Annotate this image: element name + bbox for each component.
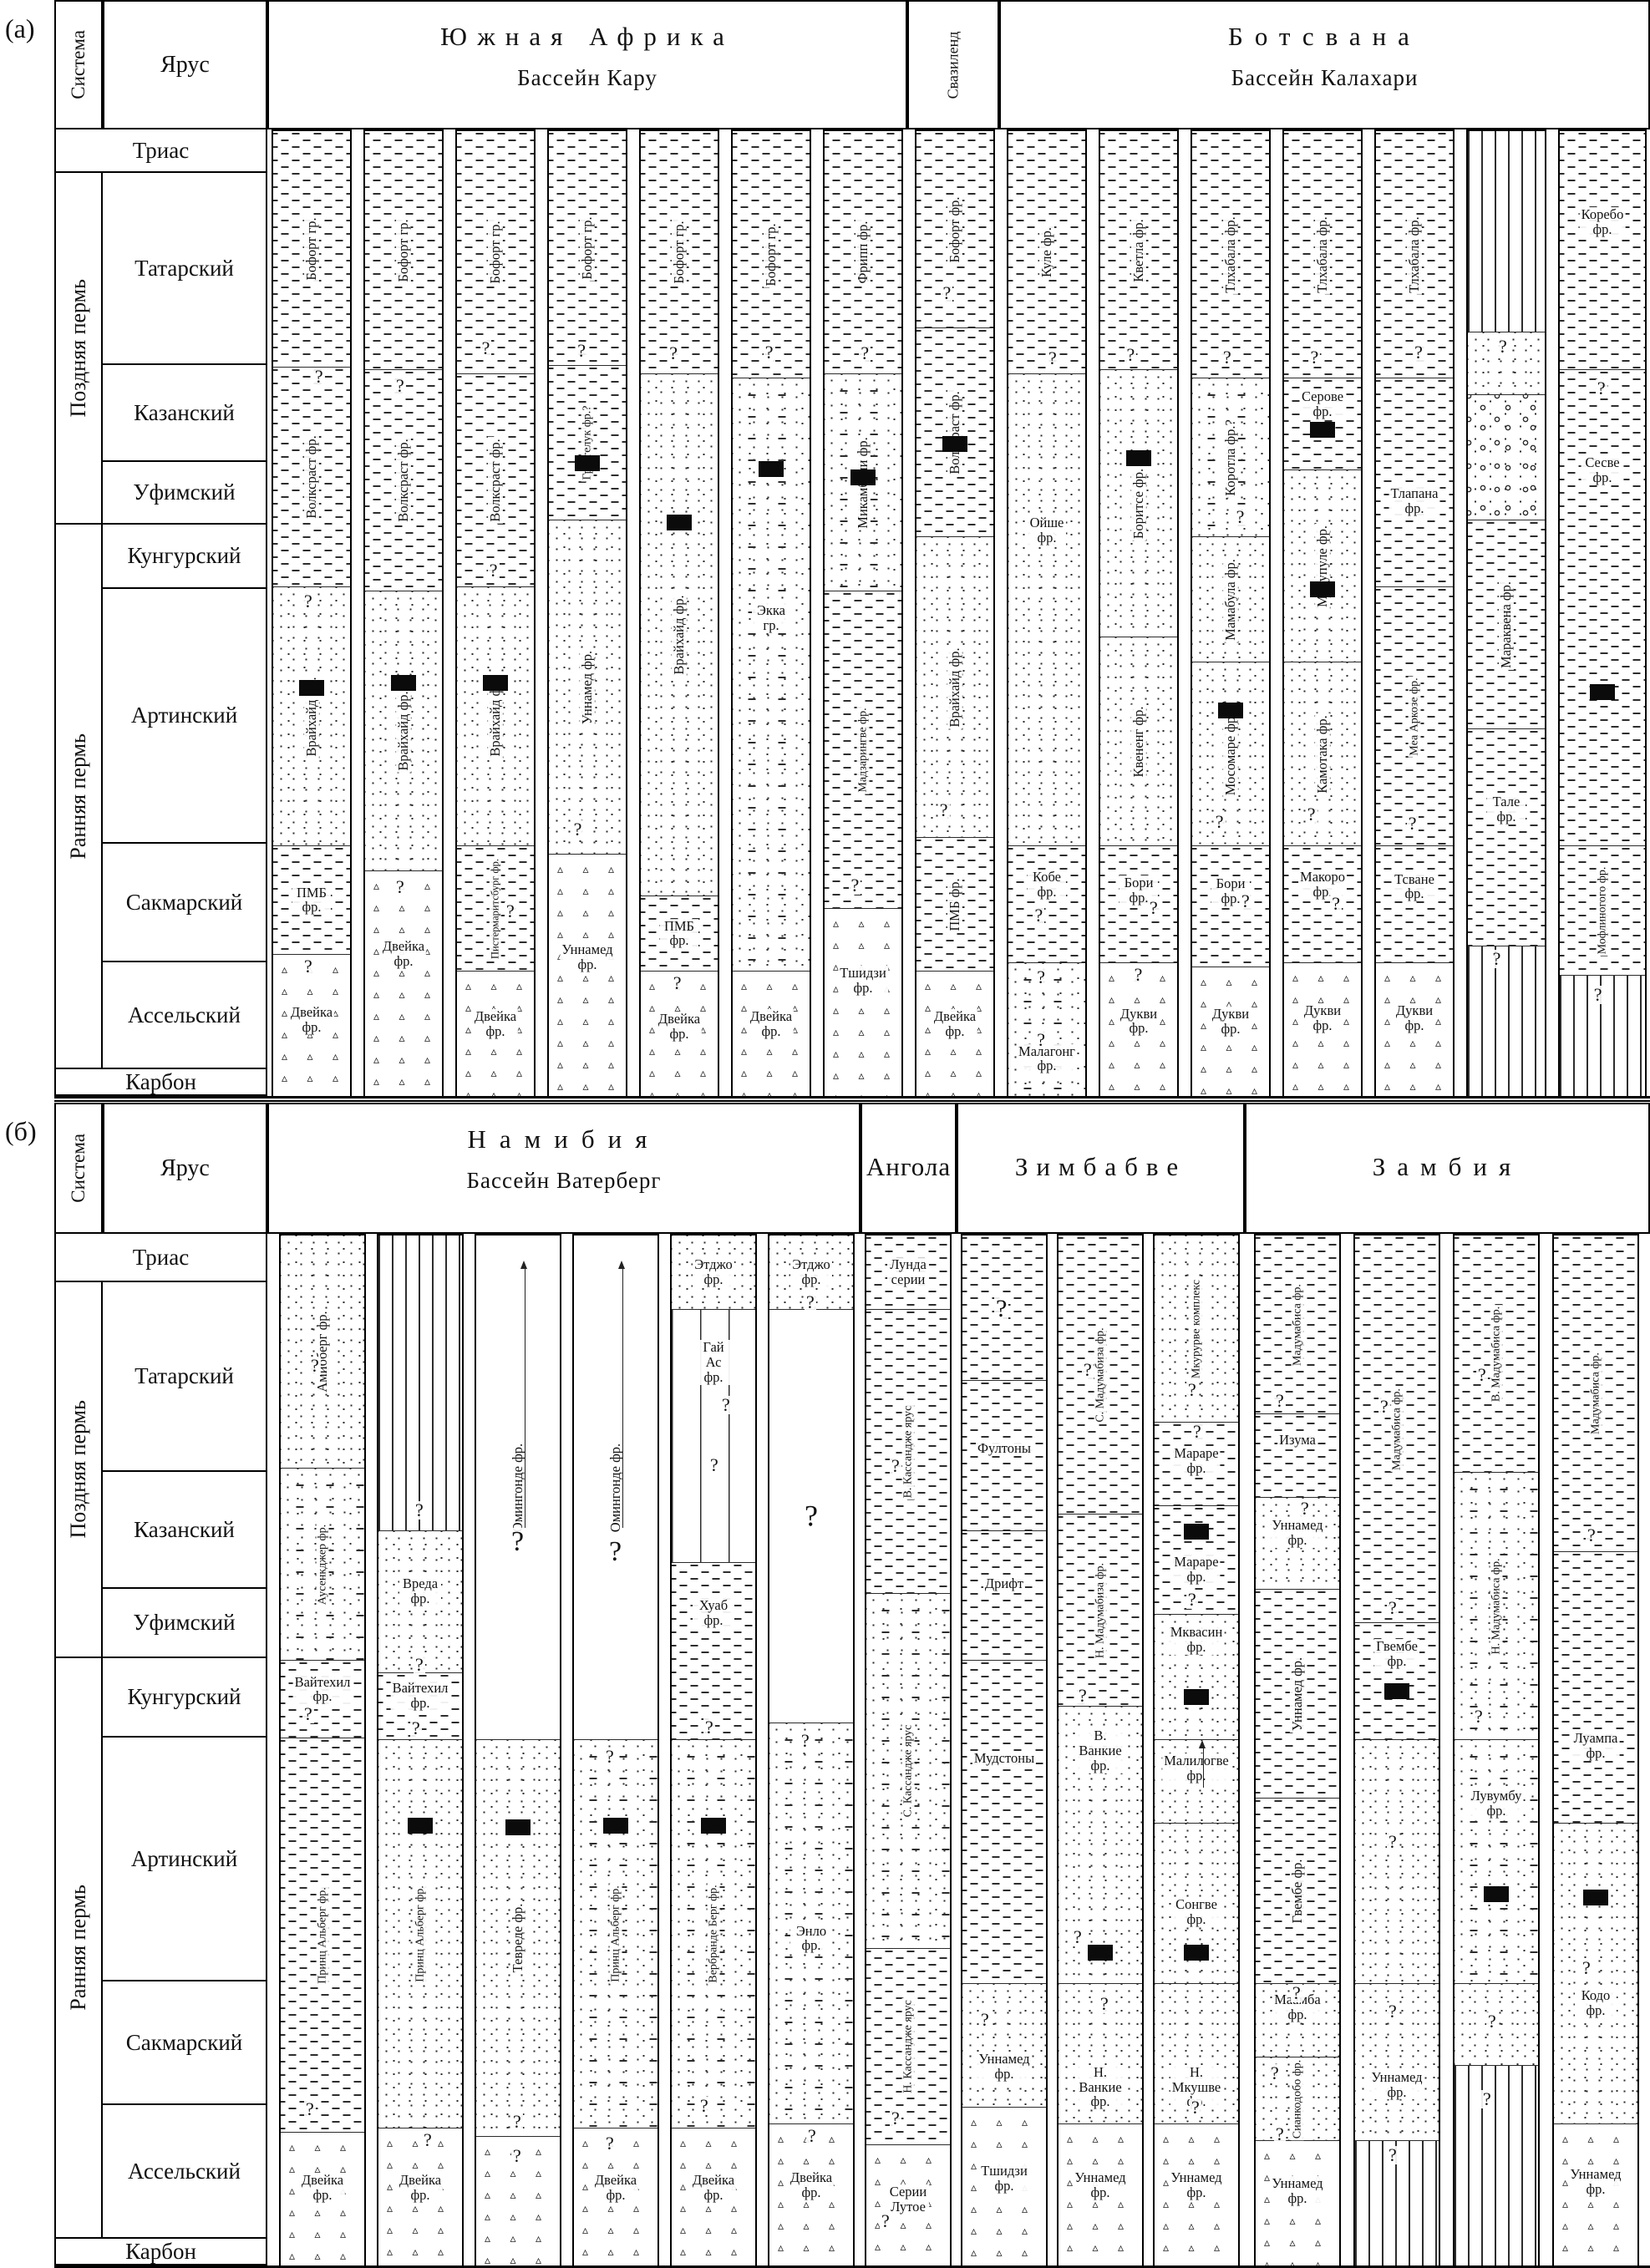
- formation-label: Дукви фр.: [1119, 1007, 1159, 1037]
- stage-row: Карбон: [54, 2239, 267, 2265]
- panel-bottom-line: [54, 1096, 1650, 1102]
- question-mark: ?: [890, 1457, 901, 1475]
- strat-unit: Малагонг фр.??: [1008, 962, 1085, 1098]
- strat-unit: ▵ ▵ ▵ ▵ ▵ ▵ ▵ ▵ ▵ ▵ ▵ ▵ ▵ ▵ ▵ ▵ ▵ ▵ ▵ ▵ …: [549, 854, 626, 1098]
- question-mark: ?: [1077, 1687, 1089, 1705]
- formation-label: Экка гр.: [752, 603, 790, 633]
- arrow-up-icon: [622, 1266, 623, 1528]
- question-mark: ?: [1186, 1381, 1198, 1399]
- question-mark: ?: [720, 1396, 732, 1414]
- strat-unit: ?: [962, 1235, 1046, 1380]
- strat-unit: Бофорт фр.?: [916, 131, 993, 327]
- strat-unit: Сианкодобо фр.??: [1256, 2057, 1339, 2140]
- formation-label: Н. Кассандже ярус: [901, 1998, 914, 2095]
- system-group: Поздняя пермь: [54, 173, 103, 525]
- question-mark: ?: [1308, 348, 1320, 367]
- question-mark: ?: [1047, 349, 1059, 368]
- region-header: Свазиленд: [907, 0, 999, 129]
- strat-unit: ▵ ▵ ▵ ▵ ▵ ▵ ▵ ▵ ▵ ▵ ▵ ▵ ▵ ▵ ▵ ▵ ▵ ▵ ▵ ▵ …: [281, 2132, 364, 2267]
- formation-label: Вайтехил фр.: [293, 1675, 353, 1705]
- formation-label: Бофорт гр.: [580, 215, 595, 281]
- formation-label: Тлхабала фр.: [1223, 215, 1238, 294]
- strat-unit: С. Кассандже ярус: [866, 1593, 950, 1948]
- strat-unit: ?: [1468, 332, 1545, 394]
- stage-header-cell: Ярус: [103, 1103, 267, 1234]
- strat-unit: Бори фр.?: [1100, 845, 1177, 962]
- strat-unit: Грутгелук фр.?: [549, 365, 626, 520]
- question-mark: ?: [708, 1456, 720, 1474]
- strat-unit: Аусенкджер фр.: [281, 1468, 364, 1660]
- formation-label: Принц Альберг фр.: [414, 1884, 426, 1984]
- strat-unit: Бори фр.?: [1192, 845, 1269, 967]
- strat-unit: Экка гр.: [733, 378, 810, 971]
- strat-unit: Бофорт гр.?: [549, 131, 626, 365]
- question-mark: ?: [394, 878, 406, 896]
- strat-unit: Уннамед фр.?: [962, 1983, 1046, 2107]
- formation-label: Уннамед фр.: [560, 942, 614, 972]
- panel-b-tag: (б): [5, 1116, 37, 1147]
- region-header: Зимбабве: [957, 1103, 1245, 1234]
- strat-unit: Мофлиногого фр.: [1560, 845, 1645, 975]
- coal-marker: [603, 1818, 628, 1834]
- formation-label: Гай Ас фр.: [693, 1340, 734, 1384]
- question-mark: ?: [1387, 2146, 1399, 2164]
- formation-label: Мараквена фр.: [1499, 580, 1514, 670]
- strat-column: Кветла фр.?Боритсе фр.Квененг фр.Бори фр…: [1099, 129, 1179, 1100]
- formation-label: Куле фр.: [1039, 226, 1054, 279]
- strat-unit: ?: [1468, 946, 1545, 1098]
- stage-row: Триас: [54, 129, 267, 173]
- strat-unit: Тевреде фр.?: [476, 1739, 560, 2136]
- coal-marker: [1310, 581, 1335, 597]
- stage-row-label: Триас: [133, 138, 189, 164]
- coal-marker: [1218, 703, 1243, 718]
- formation-label: Волксраст фр.: [488, 437, 503, 524]
- formation-label: ?: [803, 1500, 820, 1533]
- stage-row: Татарский: [103, 1282, 267, 1472]
- formation-label: Фултоны: [976, 1441, 1033, 1456]
- stage-row-label: Артинский: [131, 1846, 237, 1872]
- region-header: Ангола: [861, 1103, 957, 1234]
- strat-column: В. Мадумабиса фр.?Н. Мадумабиса фр.?Луву…: [1453, 1234, 1540, 2268]
- strat-unit: Н. Мкушве фр.?: [1155, 1983, 1238, 2123]
- system-group: Ранняя пермь: [54, 1658, 103, 2239]
- strat-unit: Мкурурве комплекс?: [1155, 1235, 1238, 1422]
- formation-label: Мамабула фр.: [1223, 557, 1238, 642]
- strat-unit: Фултоны: [962, 1380, 1046, 1530]
- strat-column: Омингонде фр.?Принц Альберг фр.?▵ ▵ ▵ ▵ …: [572, 1234, 659, 2268]
- stage-row: Татарский: [103, 173, 267, 365]
- question-mark: ?: [505, 902, 516, 921]
- stage-row: Кунгурский: [103, 1658, 267, 1738]
- stage-header-label: Ярус: [160, 1155, 210, 1182]
- system-header-cell: Система: [54, 0, 103, 129]
- formation-label: Дукви фр.: [1211, 1007, 1251, 1037]
- formation-label: В. Кассандже ярус: [901, 1403, 914, 1499]
- formation-label: Гвембе фр.: [1290, 1857, 1305, 1925]
- strat-unit: В. Ванкие фр.?: [1059, 1706, 1142, 1983]
- question-mark: ?: [859, 344, 871, 363]
- formation-label: С. Кассандже ярус: [901, 1723, 914, 1819]
- formation-label: Дукви фр.: [1302, 1003, 1343, 1033]
- formation-label: Кветла фр.: [1131, 217, 1146, 284]
- coal-marker: [1384, 1683, 1409, 1699]
- formation-label: Волксраст фр.: [396, 437, 411, 524]
- strat-unit: Уннамед фр.?: [1256, 1497, 1339, 1589]
- coal-marker: [1590, 684, 1615, 700]
- formation-label: В. Мадумабиса фр.: [1490, 1304, 1502, 1403]
- region-header: Южная АфрикаБассейн Кару: [267, 0, 907, 129]
- stage-header-cell: Ярус: [103, 0, 267, 129]
- question-mark: ?: [604, 1748, 616, 1766]
- question-mark: ?: [511, 2147, 523, 2165]
- strat-unit: ПМБ фр.: [641, 896, 718, 971]
- formation-label: Двейка фр.: [381, 939, 426, 969]
- question-mark: ?: [313, 368, 325, 386]
- strat-unit: Уннамед фр.: [1256, 1589, 1339, 1798]
- region-subtitle: Бассейн Калахари: [1001, 65, 1648, 91]
- strat-unit: Коротла фр.??: [1192, 378, 1269, 536]
- formation-label: Мквасин фр.: [1169, 1625, 1225, 1655]
- strat-unit: Бофорт гр.?: [641, 131, 718, 373]
- question-mark: ?: [849, 876, 861, 895]
- strat-column: Мадумабиса фр.??Гвембе фр.?Уннамед фр.??: [1353, 1234, 1440, 2268]
- question-mark: ?: [1190, 2098, 1201, 2117]
- strat-unit: ?: [769, 1309, 853, 1723]
- strat-unit: Н. Мадумабиза фр.?: [1059, 1514, 1142, 1706]
- strat-unit: Бофорт гр.?: [733, 131, 810, 378]
- region-header: НамибияБассейн Ватерберг: [267, 1103, 861, 1234]
- strat-unit: Тлапана фр.: [1376, 378, 1453, 586]
- formation-label: Малагонг фр.: [1017, 1044, 1077, 1074]
- question-mark: ?: [880, 2212, 891, 2230]
- question-mark: ?: [805, 1293, 816, 1312]
- question-mark: ?: [1125, 346, 1136, 364]
- formation-label: Мудстоны: [972, 1751, 1036, 1766]
- system-group: Поздняя пермь: [54, 1282, 103, 1658]
- stage-row: Сакмарский: [103, 1981, 267, 2105]
- strat-unit: Лувумбу фр.: [1455, 1739, 1538, 1983]
- question-mark: ?: [1407, 814, 1419, 833]
- question-mark: ?: [1072, 1928, 1084, 1946]
- formation-label: Двейка фр.: [789, 2170, 834, 2200]
- formation-label: Уннамед фр.: [1568, 2167, 1622, 2197]
- question-mark: ?: [1274, 2125, 1286, 2144]
- strat-unit: Волксраст фр.: [916, 327, 993, 536]
- strat-unit: ?: [1355, 1739, 1439, 1983]
- strat-column: Бофорт гр.?Волксраст фр.?Врайхайд фр.Пис…: [455, 129, 536, 1100]
- tillite-pattern: ▵ ▵ ▵ ▵ ▵ ▵ ▵ ▵ ▵ ▵ ▵ ▵ ▵ ▵ ▵ ▵ ▵ ▵ ▵ ▵ …: [365, 871, 442, 1098]
- strat-unit: ?: [1455, 2065, 1538, 2267]
- system-group: Ранняя пермь: [54, 525, 103, 1069]
- formation-label: Врайхайд фр.: [947, 646, 962, 728]
- question-mark: ?: [1274, 1392, 1286, 1410]
- strat-column: С. Мадумабиза фр.?Н. Мадумабиза фр.?В. В…: [1057, 1234, 1144, 2268]
- strat-unit: ▵ ▵ ▵ ▵ ▵ ▵ ▵ ▵ ▵ ▵ ▵ ▵ ▵ ▵ ▵ ▵ ▵ ▵ ▵ ▵ …: [1155, 2123, 1238, 2267]
- question-mark: ?: [1148, 899, 1160, 917]
- strat-unit: Тлхабала фр.?: [1284, 131, 1361, 378]
- strat-unit: [1468, 131, 1545, 332]
- strat-unit: Квененг фр.: [1100, 637, 1177, 845]
- formation-label: Сесве фр.: [1581, 455, 1624, 485]
- question-mark: ?: [309, 1357, 321, 1375]
- coal-marker: [850, 469, 876, 485]
- question-mark: ?: [1099, 1995, 1110, 2013]
- stage-row-label: Казанский: [134, 1517, 235, 1543]
- strat-unit: Мадумабиса фр.?: [1554, 1235, 1637, 1551]
- system-group-label: Поздняя пермь: [66, 1400, 91, 1539]
- formation-label: Мараре фр.: [1172, 1555, 1220, 1585]
- question-mark: ?: [410, 1719, 422, 1738]
- strat-unit: Вреда фр.?: [378, 1530, 462, 1672]
- formation-label: Бофорт гр.: [488, 219, 503, 285]
- formation-label: Изума: [1277, 1433, 1317, 1448]
- stage-row-label: Триас: [133, 1245, 189, 1271]
- formation-label: Коребо фр.: [1580, 207, 1626, 237]
- strat-unit: Кодо фр.?: [1554, 1823, 1637, 2123]
- stage-row-label: Ассельский: [128, 2159, 241, 2184]
- stage-row: Ассельский: [103, 2105, 267, 2239]
- strat-column: Фрипп фр.?Микамбени фр.Мадзарингве фр.?▵…: [823, 129, 903, 1100]
- coal-marker: [391, 675, 416, 691]
- strat-unit: В. Мадумабиса фр.?: [1455, 1235, 1538, 1472]
- question-mark: ?: [938, 801, 950, 819]
- strat-unit: Бофорт гр.?: [457, 131, 534, 373]
- formation-label: Дрифт: [983, 1576, 1025, 1591]
- strat-unit: ▵ ▵ ▵ ▵ ▵ ▵ ▵ ▵ ▵ ▵ ▵ ▵ ▵ ▵ ▵ ▵ ▵ ▵ ▵ ▵ …: [476, 2136, 560, 2267]
- coal-marker: [701, 1818, 726, 1834]
- stage-row-label: Кунгурский: [127, 1684, 241, 1710]
- strat-column: Омингонде фр.?Тевреде фр.?▵ ▵ ▵ ▵ ▵ ▵ ▵ …: [475, 1234, 561, 2268]
- strat-unit: Боритсе фр.: [1100, 369, 1177, 637]
- arrow-up-icon: [525, 1266, 525, 1528]
- stage-row-label: Сакмарский: [126, 890, 243, 916]
- formation-label: Мкурурве комплекс: [1190, 1277, 1202, 1379]
- region-subtitle: Бассейн Кару: [269, 65, 906, 91]
- formation-label: Энло фр.: [790, 1924, 832, 1954]
- strat-unit: ?: [1355, 2140, 1439, 2267]
- strat-unit: Врайхайд фр.?: [916, 536, 993, 837]
- formation-label: ПМБ фр.: [947, 876, 962, 932]
- stage-row-label: Сакмарский: [126, 2030, 243, 2056]
- formation-label: Омингонде фр.: [510, 1441, 525, 1533]
- question-mark: ?: [1033, 906, 1044, 925]
- formation-label: Кодо фр.: [1575, 1988, 1617, 2018]
- formation-label: Тшидзи фр.: [838, 966, 888, 996]
- strat-unit: ▵ ▵ ▵ ▵ ▵ ▵ ▵ ▵ ▵ ▵ ▵ ▵ ▵ ▵ ▵ ▵ ▵ ▵ ▵ ▵ …: [672, 2128, 755, 2267]
- formation-label: Н. Мадумабиса фр.: [1490, 1556, 1502, 1656]
- strat-column: Бофорт гр.Волксраст фр.?Врайхайд фр.▵ ▵ …: [363, 129, 444, 1100]
- formation-label: Двейка фр.: [657, 1012, 702, 1042]
- question-mark: ?: [1586, 1526, 1597, 1545]
- stage-row-label: Карбон: [125, 1069, 196, 1095]
- coal-marker: [483, 675, 508, 691]
- formation-label: Н. Ванкие фр.: [1077, 2065, 1123, 2109]
- strat-column: Мадумабиса фр.?ИзумаУннамед фр.?Уннамед …: [1254, 1234, 1341, 2268]
- question-mark: ?: [994, 1296, 1008, 1322]
- formation-label: Тевреде фр.: [510, 1902, 525, 1975]
- formation-label: Мадумабиса фр.: [1589, 1351, 1602, 1436]
- system-group-label: Ранняя пермь: [66, 1885, 91, 2011]
- formation-label: Бофорт гр.: [672, 219, 687, 285]
- formation-label: Двейка фр.: [932, 1009, 977, 1039]
- question-mark: ?: [480, 339, 492, 358]
- strat-unit: ▵ ▵ ▵ ▵ ▵ ▵ ▵ ▵ ▵ ▵ ▵ ▵ ▵ ▵ ▵ ▵ ▵ ▵ ▵ ▵ …: [1554, 2123, 1637, 2267]
- strat-unit: Принц Альберг фр.?: [281, 1738, 364, 2132]
- strat-unit: Куле фр.?: [1008, 131, 1085, 373]
- formation-label: Камотака фр.: [1315, 713, 1330, 795]
- formation-label: Мадумабиса фр.: [1291, 1282, 1303, 1367]
- strat-unit: Омингонде фр.?: [476, 1235, 560, 1739]
- strat-unit: Фрипп фр.?: [825, 131, 901, 373]
- formation-label: Вреда фр.: [399, 1576, 441, 1606]
- question-mark: ?: [1592, 986, 1604, 1004]
- stage-row-label: Кунгурский: [127, 543, 241, 569]
- stage-row: Уфимский: [103, 1589, 267, 1658]
- formation-label: В. Ванкие фр.: [1077, 1728, 1123, 1773]
- formation-label: Уннамед фр.: [977, 2052, 1031, 2082]
- strat-unit: Тлхабала фр.?: [1376, 131, 1453, 378]
- strat-unit: Серове фр.: [1284, 378, 1361, 469]
- strat-column: Этджо фр.Гай Ас фр.??Хуаб фр.?Вербранде …: [670, 1234, 757, 2268]
- formation-label: Сонгве фр.: [1174, 1897, 1219, 1927]
- strat-unit: Мосомаре фр.?: [1192, 662, 1269, 845]
- formation-label: Лунда серии: [887, 1257, 929, 1287]
- coal-marker: [1184, 1689, 1209, 1705]
- strat-unit: ▵ ▵ ▵ ▵ ▵ ▵ ▵ ▵ ▵ ▵ ▵ ▵ ▵ ▵ ▵ ▵ ▵ ▵ ▵ ▵ …: [574, 2128, 657, 2267]
- coal-marker: [575, 455, 600, 471]
- formation-label: Луампа фр.: [1572, 1731, 1620, 1761]
- strat-unit: Врайхайд фр.: [641, 373, 718, 896]
- formation-label: Боритсе фр.: [1131, 466, 1146, 540]
- strat-unit: Уннамед фр.?: [1355, 1983, 1439, 2140]
- question-mark: ?: [511, 2113, 523, 2131]
- question-mark: ?: [1186, 1591, 1198, 1609]
- formation-label: Мараре фр.: [1172, 1446, 1220, 1476]
- coal-marker: [1184, 1524, 1209, 1540]
- question-mark: ?: [414, 1656, 425, 1674]
- formation-label: Фрипп фр.: [855, 220, 871, 286]
- strat-unit: Лунда серии: [866, 1235, 950, 1309]
- coal-marker: [1088, 1945, 1113, 1961]
- strat-unit: Этджо фр.: [672, 1235, 755, 1309]
- strat-unit: Сонгве фр.: [1155, 1823, 1238, 1983]
- strat-unit: Луампа фр.: [1554, 1551, 1637, 1823]
- stage-row-label: Артинский: [131, 703, 237, 728]
- formation-label: ПМБ фр.: [660, 919, 698, 949]
- system-header-label: Система: [68, 30, 89, 99]
- strat-unit: Гай Ас фр.??: [672, 1309, 755, 1562]
- strat-unit: ▵ ▵ ▵ ▵ ▵ ▵ ▵ ▵ ▵ ▵ ▵ ▵ ▵ ▵ ▵ ▵ ▵ ▵ ▵ ▵ …: [916, 971, 993, 1098]
- question-mark: ?: [1473, 1707, 1485, 1726]
- strat-unit: Мараре фр.?: [1155, 1505, 1238, 1614]
- stage-row-label: Татарский: [135, 1363, 234, 1389]
- question-mark: ?: [941, 284, 952, 302]
- stage-row: Кунгурский: [103, 525, 267, 589]
- region-header: Замбия: [1245, 1103, 1650, 1234]
- stage-row-label: Уфимский: [133, 1610, 235, 1636]
- question-mark: ?: [764, 343, 775, 362]
- question-mark: ?: [607, 1538, 623, 1566]
- panel-a: (а) СистемаЯрусЮжная АфрикаБассейн КаруС…: [0, 0, 1650, 1103]
- question-mark: ?: [1082, 1361, 1094, 1379]
- strat-unit: ▵ ▵ ▵ ▵ ▵ ▵ ▵ ▵ ▵ ▵ ▵ ▵ ▵ ▵ ▵ ▵ ▵ ▵ ▵ ▵ …: [1059, 2123, 1142, 2267]
- strat-column: Куле фр.?Ойше фр.Кобе фр.?Малагонг фр.??: [1007, 129, 1087, 1100]
- question-mark: ?: [1481, 2090, 1493, 2108]
- question-mark: ?: [1413, 343, 1424, 362]
- strat-unit: [1468, 394, 1545, 520]
- question-mark: ?: [1235, 508, 1246, 526]
- strat-unit: ▵ ▵ ▵ ▵ ▵ ▵ ▵ ▵ ▵ ▵ ▵ ▵ ▵ ▵ ▵ ▵ ▵ ▵ ▵ ▵ …: [641, 971, 718, 1098]
- formation-label: Бофорт фр.: [947, 195, 962, 264]
- strat-unit: ▵ ▵ ▵ ▵ ▵ ▵ ▵ ▵ ▵ ▵ ▵ ▵ ▵ ▵ ▵ ▵ ▵ ▵ ▵ ▵ …: [273, 954, 350, 1098]
- formation-label: Хуаб фр.: [693, 1598, 734, 1628]
- question-mark: ?: [422, 2131, 434, 2149]
- strat-column: Мкурурве комплекс?Мараре фр.?Мараре фр.?…: [1153, 1234, 1240, 2268]
- formation-label: Амибберг фр.: [315, 1309, 330, 1393]
- system-header-label: Система: [68, 1134, 89, 1203]
- question-mark: ?: [572, 820, 584, 839]
- strat-unit: Мадзарингве фр.?: [825, 591, 901, 908]
- strat-unit: ▵ ▵ ▵ ▵ ▵ ▵ ▵ ▵ ▵ ▵ ▵ ▵ ▵ ▵ ▵ ▵ ▵ ▵ ▵ ▵ …: [365, 870, 442, 1098]
- strat-unit: Волксраст фр.?: [457, 373, 534, 586]
- strat-unit: ▵ ▵ ▵ ▵ ▵ ▵ ▵ ▵ ▵ ▵ ▵ ▵ ▵ ▵ ▵ ▵ ▵ ▵ ▵ ▵ …: [378, 2128, 462, 2267]
- strat-unit: ПМБ фр.: [916, 837, 993, 971]
- region-title: Ангола: [862, 1152, 955, 1182]
- strat-unit: Мадумабиса фр.??: [1355, 1235, 1439, 1622]
- question-mark: ?: [703, 1718, 715, 1737]
- strat-column: Бофорт гр.Волксраст фр.?Врайхайд фр.?ПМБ…: [272, 129, 352, 1100]
- question-mark: ?: [304, 2100, 316, 2118]
- strat-unit: Уннамед фр.?: [549, 520, 626, 854]
- coal-marker: [667, 515, 692, 530]
- strat-column: Этджо фр.??Энло фр.?▵ ▵ ▵ ▵ ▵ ▵ ▵ ▵ ▵ ▵ …: [768, 1234, 855, 2268]
- formation-label: Бофорт гр.: [764, 221, 779, 287]
- question-mark: ?: [1387, 2002, 1399, 2021]
- question-mark: ?: [302, 957, 314, 976]
- strat-column: Лунда серииВ. Кассандже ярус?С. Кассандж…: [865, 1234, 952, 2268]
- formation-label: Уннамед фр.: [1270, 1518, 1324, 1548]
- strat-unit: Коребо фр.: [1560, 131, 1645, 369]
- strat-unit: Принц Альберг фр.: [378, 1739, 462, 2128]
- region-title: Южная Африка: [269, 22, 906, 52]
- formation-label: Двейка фр.: [473, 1009, 518, 1039]
- strat-unit: Кветла фр.?: [1100, 131, 1177, 369]
- question-mark: ?: [1387, 1599, 1399, 1617]
- stage-row: Уфимский: [103, 462, 267, 525]
- strat-unit: Волксраст фр.?: [365, 369, 442, 591]
- stage-row-label: Ассельский: [128, 1002, 241, 1028]
- strat-unit: ▵ ▵ ▵ ▵ ▵ ▵ ▵ ▵ ▵ ▵ ▵ ▵ ▵ ▵ ▵ ▵ ▵ ▵ ▵ ▵ …: [1376, 962, 1453, 1098]
- strat-unit: ?: [378, 1235, 462, 1530]
- strat-column: ?Мараквена фр.Тале фр.?: [1466, 129, 1546, 1100]
- strat-unit: Маамба фр.?: [1256, 1983, 1339, 2057]
- formation-label: Уннамед фр.: [1270, 2176, 1324, 2206]
- coal-marker: [299, 680, 324, 696]
- stage-row: Казанский: [103, 1472, 267, 1589]
- strat-unit: Меа Аркозе фр.?: [1376, 586, 1453, 845]
- question-mark: ?: [1269, 2064, 1281, 2083]
- formation-label: Пистермаритсбург фр.: [490, 856, 501, 960]
- formation-label: Аусенкджер фр.: [316, 1522, 328, 1606]
- question-mark: ?: [488, 561, 500, 580]
- formation-label: Мосомаре фр.: [1223, 711, 1238, 797]
- strat-column: Бофорт гр.?Экка гр.▵ ▵ ▵ ▵ ▵ ▵ ▵ ▵ ▵ ▵ ▵…: [731, 129, 811, 1100]
- formation-label: Уннамед фр.: [1290, 1655, 1305, 1732]
- stage-row: Казанский: [103, 365, 267, 462]
- tillite-pattern: ▵ ▵ ▵ ▵ ▵ ▵ ▵ ▵ ▵ ▵ ▵ ▵ ▵ ▵ ▵ ▵ ▵ ▵ ▵ ▵ …: [825, 909, 901, 1098]
- region-title: Замбия: [1246, 1152, 1648, 1182]
